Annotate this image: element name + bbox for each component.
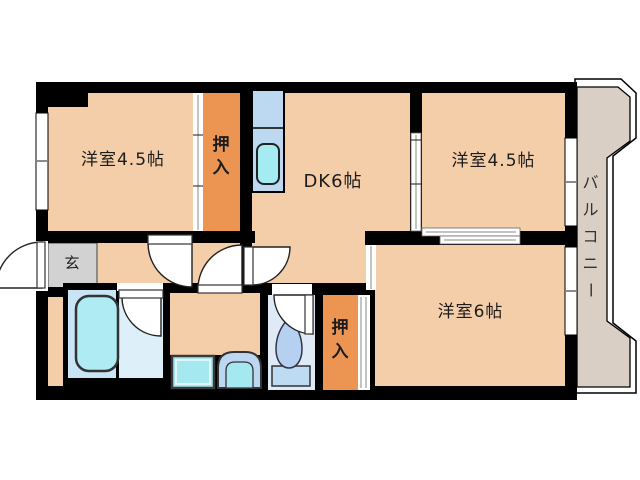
wall-stub [48, 287, 63, 297]
closet-bottom-char-2: 入 [332, 340, 350, 364]
balcony-char-1: バ [582, 169, 599, 196]
left-corridor-strip [48, 297, 63, 386]
closet-bottom-char-1: 押 [332, 316, 350, 340]
room-nw-door-leaf [148, 235, 192, 244]
balcony-char-2: ル [582, 196, 599, 223]
washer-pan [172, 356, 214, 388]
bathroom-door-leaf [119, 290, 163, 298]
toilet-tank [272, 366, 310, 386]
room-se-label: 洋室6帖 [375, 303, 566, 323]
closet-bottom-sliding-door [358, 295, 370, 390]
room-nw-label: 洋室4.5帖 [48, 151, 198, 171]
washroom-floor [170, 293, 260, 355]
bathtub [76, 296, 118, 371]
balcony-char-5: ー [577, 282, 604, 299]
entrance-door-swing [0, 242, 42, 288]
floor-plan-drawing [0, 0, 640, 480]
washroom-door-leaf [198, 285, 242, 293]
floor-plan: 洋室4.5帖 押 入 DK6帖 洋室4.5帖 洋室6帖 押 入 玄 バ ル コ … [0, 0, 640, 480]
balcony-char-3: コ [582, 223, 599, 250]
balcony-label: バ ル コ ニ ー [577, 169, 605, 304]
closet-top-char-2: 入 [213, 157, 231, 180]
toilet-doorway [272, 284, 312, 295]
washbasin-inner [226, 362, 253, 388]
closet-top-label: 押 入 [203, 134, 240, 180]
closet-bottom-label: 押 入 [323, 316, 358, 364]
genkan-label: 玄 [48, 255, 97, 272]
room-ne-label: 洋室4.5帖 [420, 152, 567, 172]
wall-hall-north [36, 231, 255, 243]
entrance-door-leaf [37, 242, 45, 288]
hall-dk-door-leaf [244, 247, 253, 285]
toilet-door-leaf [305, 295, 313, 334]
closet-top-char-1: 押 [213, 134, 231, 157]
washbasin [218, 352, 261, 388]
wall-corner-notch [36, 82, 88, 107]
wall-top [36, 82, 577, 93]
dk-label: DK6帖 [253, 172, 413, 193]
balcony-char-4: ニ [582, 250, 599, 277]
